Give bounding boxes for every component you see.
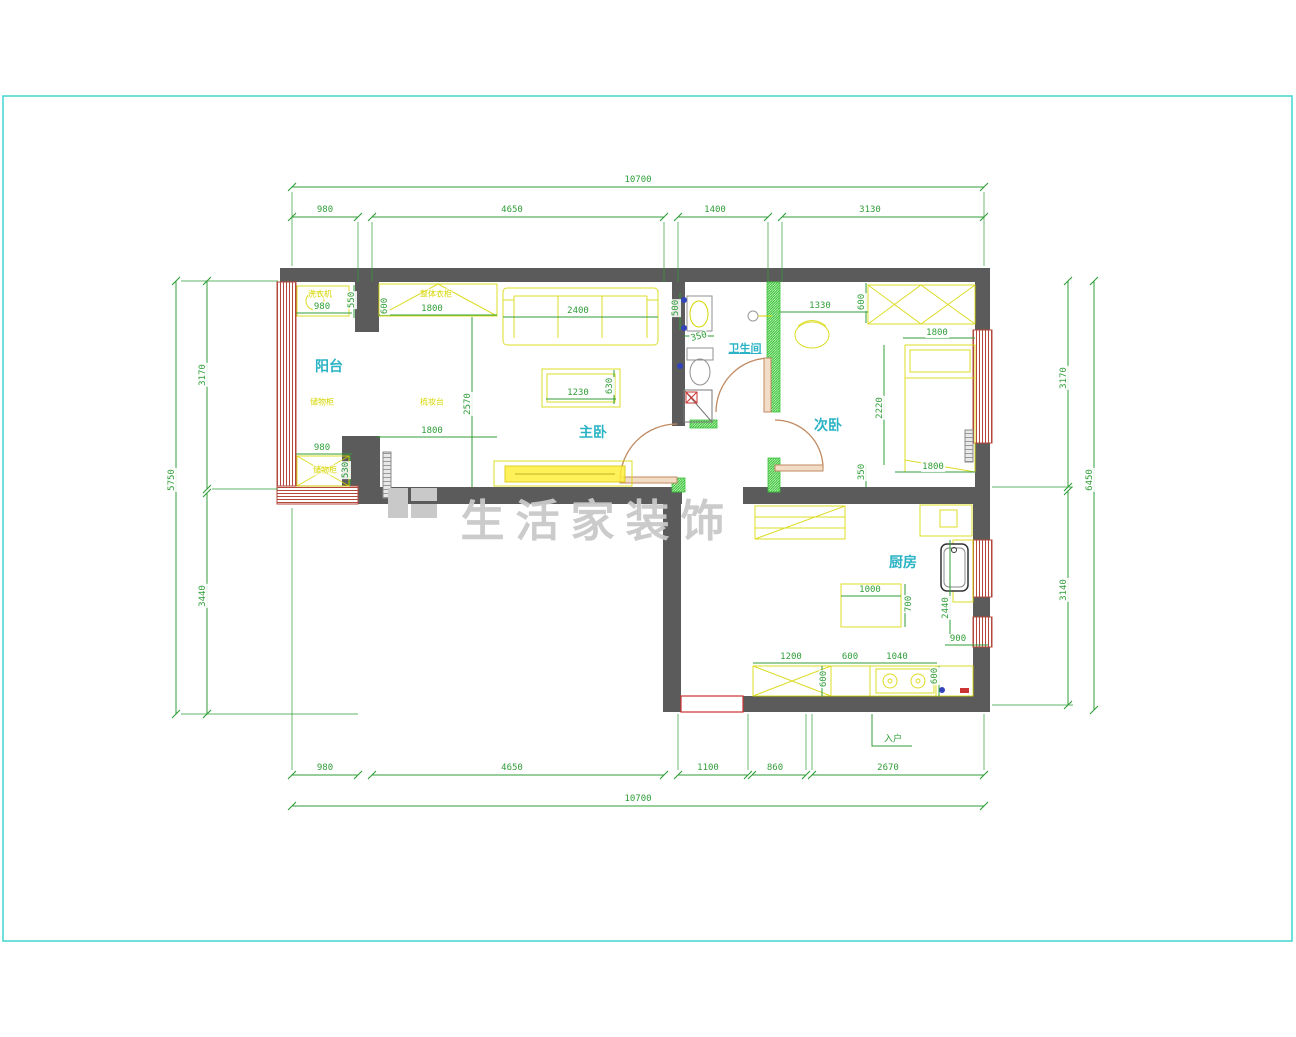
kitchen-sink (941, 544, 968, 591)
coffee-table (542, 369, 620, 407)
wall-right-upper (975, 282, 990, 330)
wall-bathroom-left (672, 282, 685, 426)
door-leaf-bedroom2 (775, 465, 823, 471)
door-swing-bedroom2 (775, 420, 823, 468)
door-swing-bathroom (716, 358, 770, 412)
bedroom2-wardrobe (868, 285, 975, 324)
new-wall-bedroom2-door-stub (768, 458, 780, 492)
window-kitchen-east-2 (973, 617, 992, 647)
door-leaf-bathroom (764, 358, 771, 412)
door-leaf-master (620, 477, 677, 483)
toilet (687, 348, 713, 385)
window-balcony-south (277, 486, 358, 504)
window-kitchen-east-1 (973, 540, 992, 597)
window-balcony-west (277, 282, 296, 486)
floor-plan-canvas[interactable]: 1070098046501400313098046501100860267010… (0, 0, 1296, 1037)
entry-bench (755, 506, 845, 539)
doors-group (620, 358, 823, 712)
new-wall-shower-curb (690, 420, 717, 428)
kitchen-table (841, 584, 901, 627)
bath-sink (687, 296, 712, 331)
window-bedroom2-east (973, 330, 992, 443)
wall-kitchen-east-a (973, 504, 990, 540)
drawing-frame-border (3, 96, 1292, 941)
wall-top (280, 268, 990, 282)
wall-pier-balcony-top (355, 282, 379, 332)
bedroom2-chair (795, 321, 829, 349)
wall-kitchen-east-c (973, 647, 990, 712)
balcony-cabinet (297, 456, 349, 486)
wall-kitchen-south (743, 696, 990, 712)
radiator-bedroom2 (965, 430, 973, 462)
washing-machine (297, 286, 349, 316)
wall-right-mid (975, 443, 990, 504)
entry-door-opening (681, 696, 743, 712)
wall-kitchen-east-b (973, 597, 990, 617)
door-swing-master (620, 424, 677, 481)
shower (684, 390, 712, 422)
wall-kitchen-west (663, 504, 681, 712)
fridge (920, 505, 972, 536)
tv-cabinet (494, 461, 632, 486)
floor-plan-drawing (0, 0, 1296, 1037)
master-wardrobe (379, 284, 497, 316)
